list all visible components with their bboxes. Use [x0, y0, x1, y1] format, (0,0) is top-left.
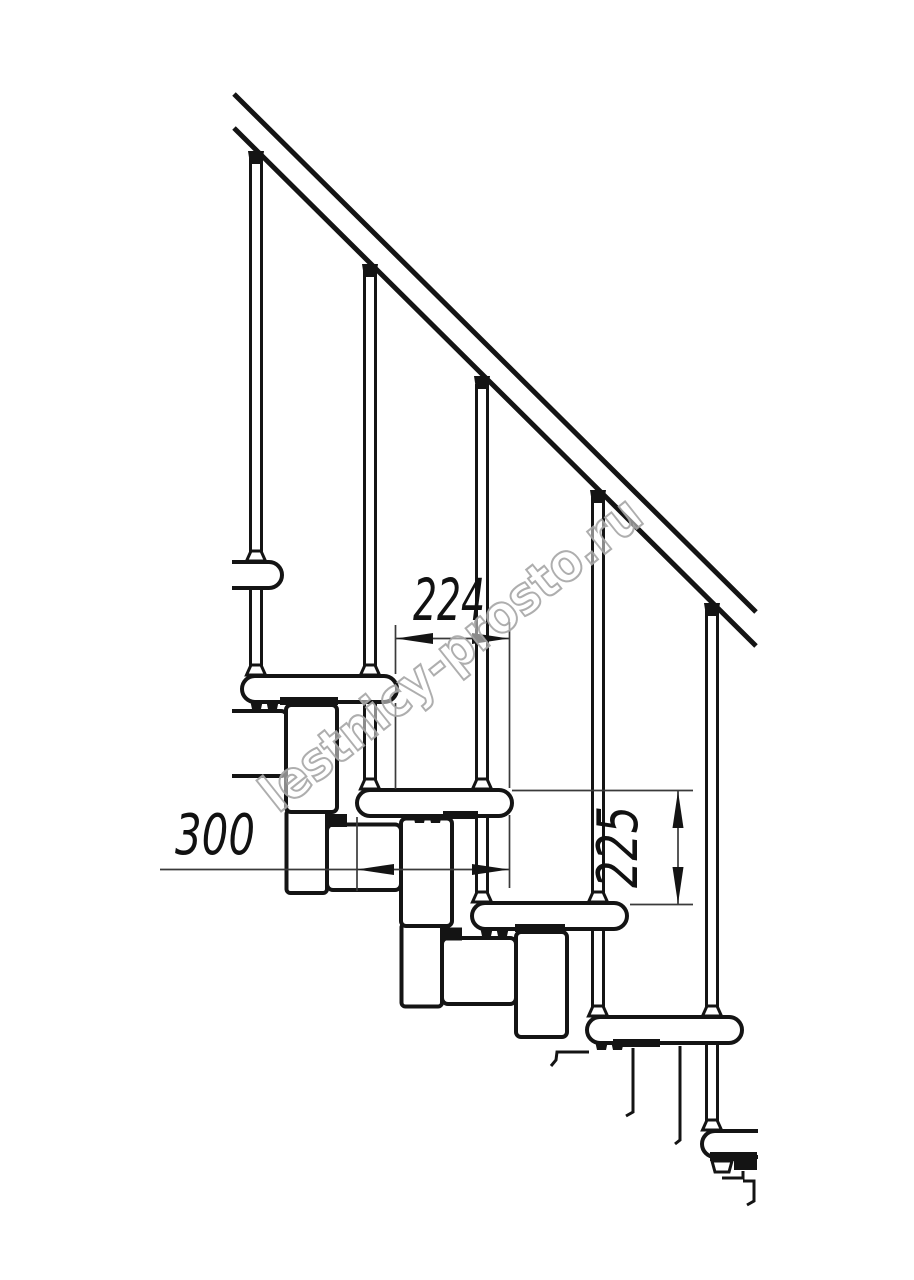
baluster-foot-2: [361, 779, 380, 789]
tread-clamp-5-break: [710, 1152, 757, 1205]
module-horizontal-tube-2: [327, 825, 401, 891]
module-insert-2: [402, 924, 443, 1007]
tread-2: [357, 790, 512, 816]
module-vertical-tube-4-break: [551, 1046, 680, 1144]
module-insert-1: [287, 810, 328, 893]
baluster-5: [704, 603, 720, 1129]
staircase-technical-drawing: 224 300 225 lestnicy-prosto.ru: [0, 0, 914, 1280]
baluster-collar-tread-3: [589, 892, 608, 902]
module-vertical-tube-3: [516, 932, 567, 1037]
module-junction-clamp-2: [442, 928, 462, 941]
baluster-foot-1: [247, 665, 266, 675]
dimension-riser-height: 225: [512, 791, 693, 905]
dimension-label-riser-height: 225: [586, 806, 651, 888]
arrowhead-up: [673, 791, 684, 828]
baluster-1: [248, 151, 264, 674]
handrail: [234, 94, 756, 646]
arrowhead-right: [472, 864, 509, 875]
module-junction-clamp-1: [327, 814, 347, 827]
baluster-collar-tread-2: [473, 779, 492, 789]
arrowhead-down: [673, 867, 684, 904]
baluster-foot-5: [703, 1120, 722, 1130]
baluster-foot-3: [473, 892, 492, 902]
tread-4: [587, 1017, 742, 1043]
tread-0: [127, 562, 282, 588]
module-horizontal-tube-3: [442, 938, 516, 1004]
module-vertical-tube-2: [401, 819, 452, 927]
baluster-collar-tread-4: [703, 1006, 722, 1016]
baluster-foot-4: [589, 1006, 608, 1016]
dimension-label-tread-depth: 300: [175, 803, 255, 868]
baluster-collar-tread-1: [361, 665, 380, 675]
baluster-collar-tread-0: [247, 551, 266, 561]
drawing-canvas: 224 300 225 lestnicy-prosto.ru: [0, 0, 914, 1280]
